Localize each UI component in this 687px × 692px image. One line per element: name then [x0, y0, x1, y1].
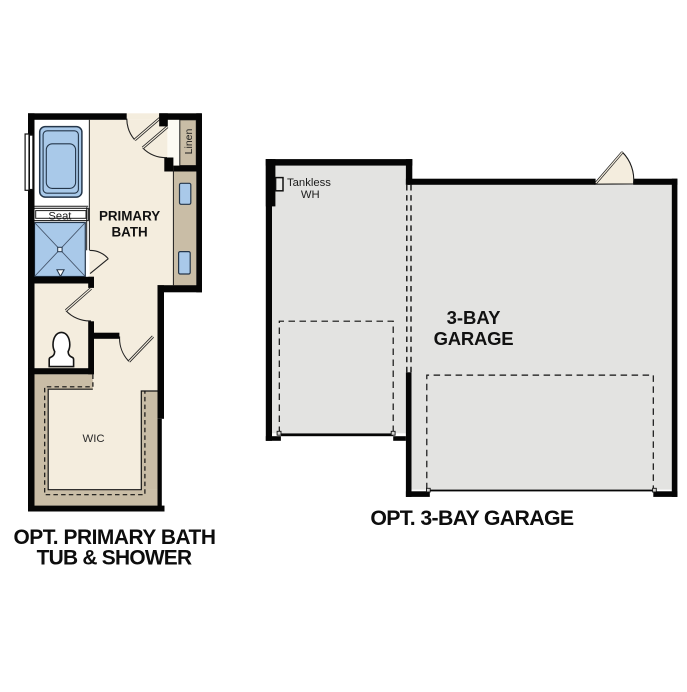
svg-text:PRIMARY: PRIMARY: [99, 209, 160, 224]
svg-text:WH: WH: [301, 189, 320, 201]
svg-text:OPT. 3-BAY GARAGE: OPT. 3-BAY GARAGE: [370, 506, 574, 530]
svg-text:GARAGE: GARAGE: [434, 328, 514, 349]
svg-text:WIC: WIC: [83, 433, 105, 445]
svg-text:TUB & SHOWER: TUB & SHOWER: [37, 546, 192, 569]
svg-text:3-BAY: 3-BAY: [447, 307, 501, 328]
svg-text:Linen: Linen: [183, 129, 195, 155]
svg-text:BATH: BATH: [111, 224, 147, 239]
svg-text:Seat: Seat: [48, 211, 72, 223]
svg-text:Tankless: Tankless: [287, 177, 331, 189]
